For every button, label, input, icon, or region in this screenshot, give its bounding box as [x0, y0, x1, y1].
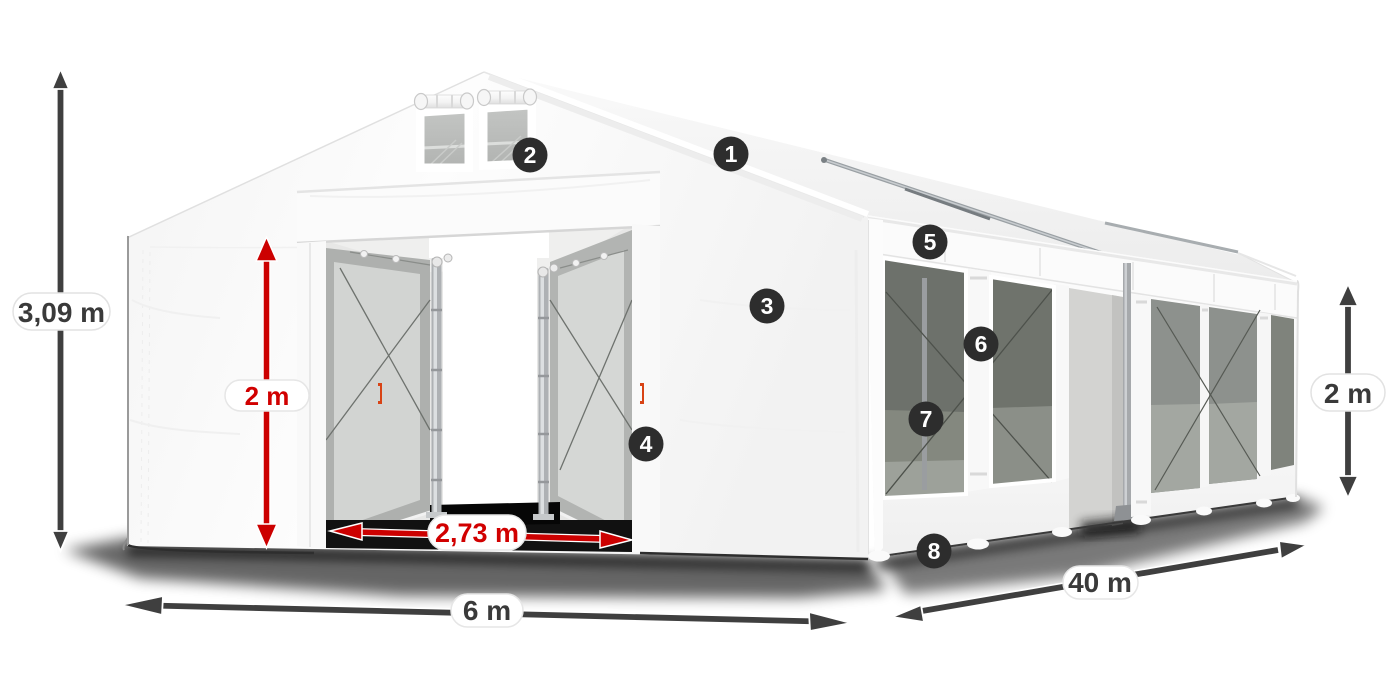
svg-text:7: 7	[920, 406, 933, 432]
svg-text:6: 6	[975, 331, 988, 357]
svg-text:4: 4	[640, 431, 653, 457]
svg-text:2,73 m: 2,73 m	[435, 518, 519, 548]
svg-text:5: 5	[924, 229, 937, 255]
svg-text:3,09 m: 3,09 m	[18, 297, 105, 328]
svg-text:2 m: 2 m	[1324, 378, 1372, 409]
svg-text:3: 3	[761, 293, 774, 319]
svg-text:2 m: 2 m	[245, 381, 290, 411]
svg-text:2: 2	[524, 142, 537, 168]
svg-text:40 m: 40 m	[1068, 567, 1132, 598]
svg-text:6 m: 6 m	[463, 595, 511, 626]
svg-text:8: 8	[928, 538, 941, 564]
svg-text:1: 1	[725, 141, 738, 167]
